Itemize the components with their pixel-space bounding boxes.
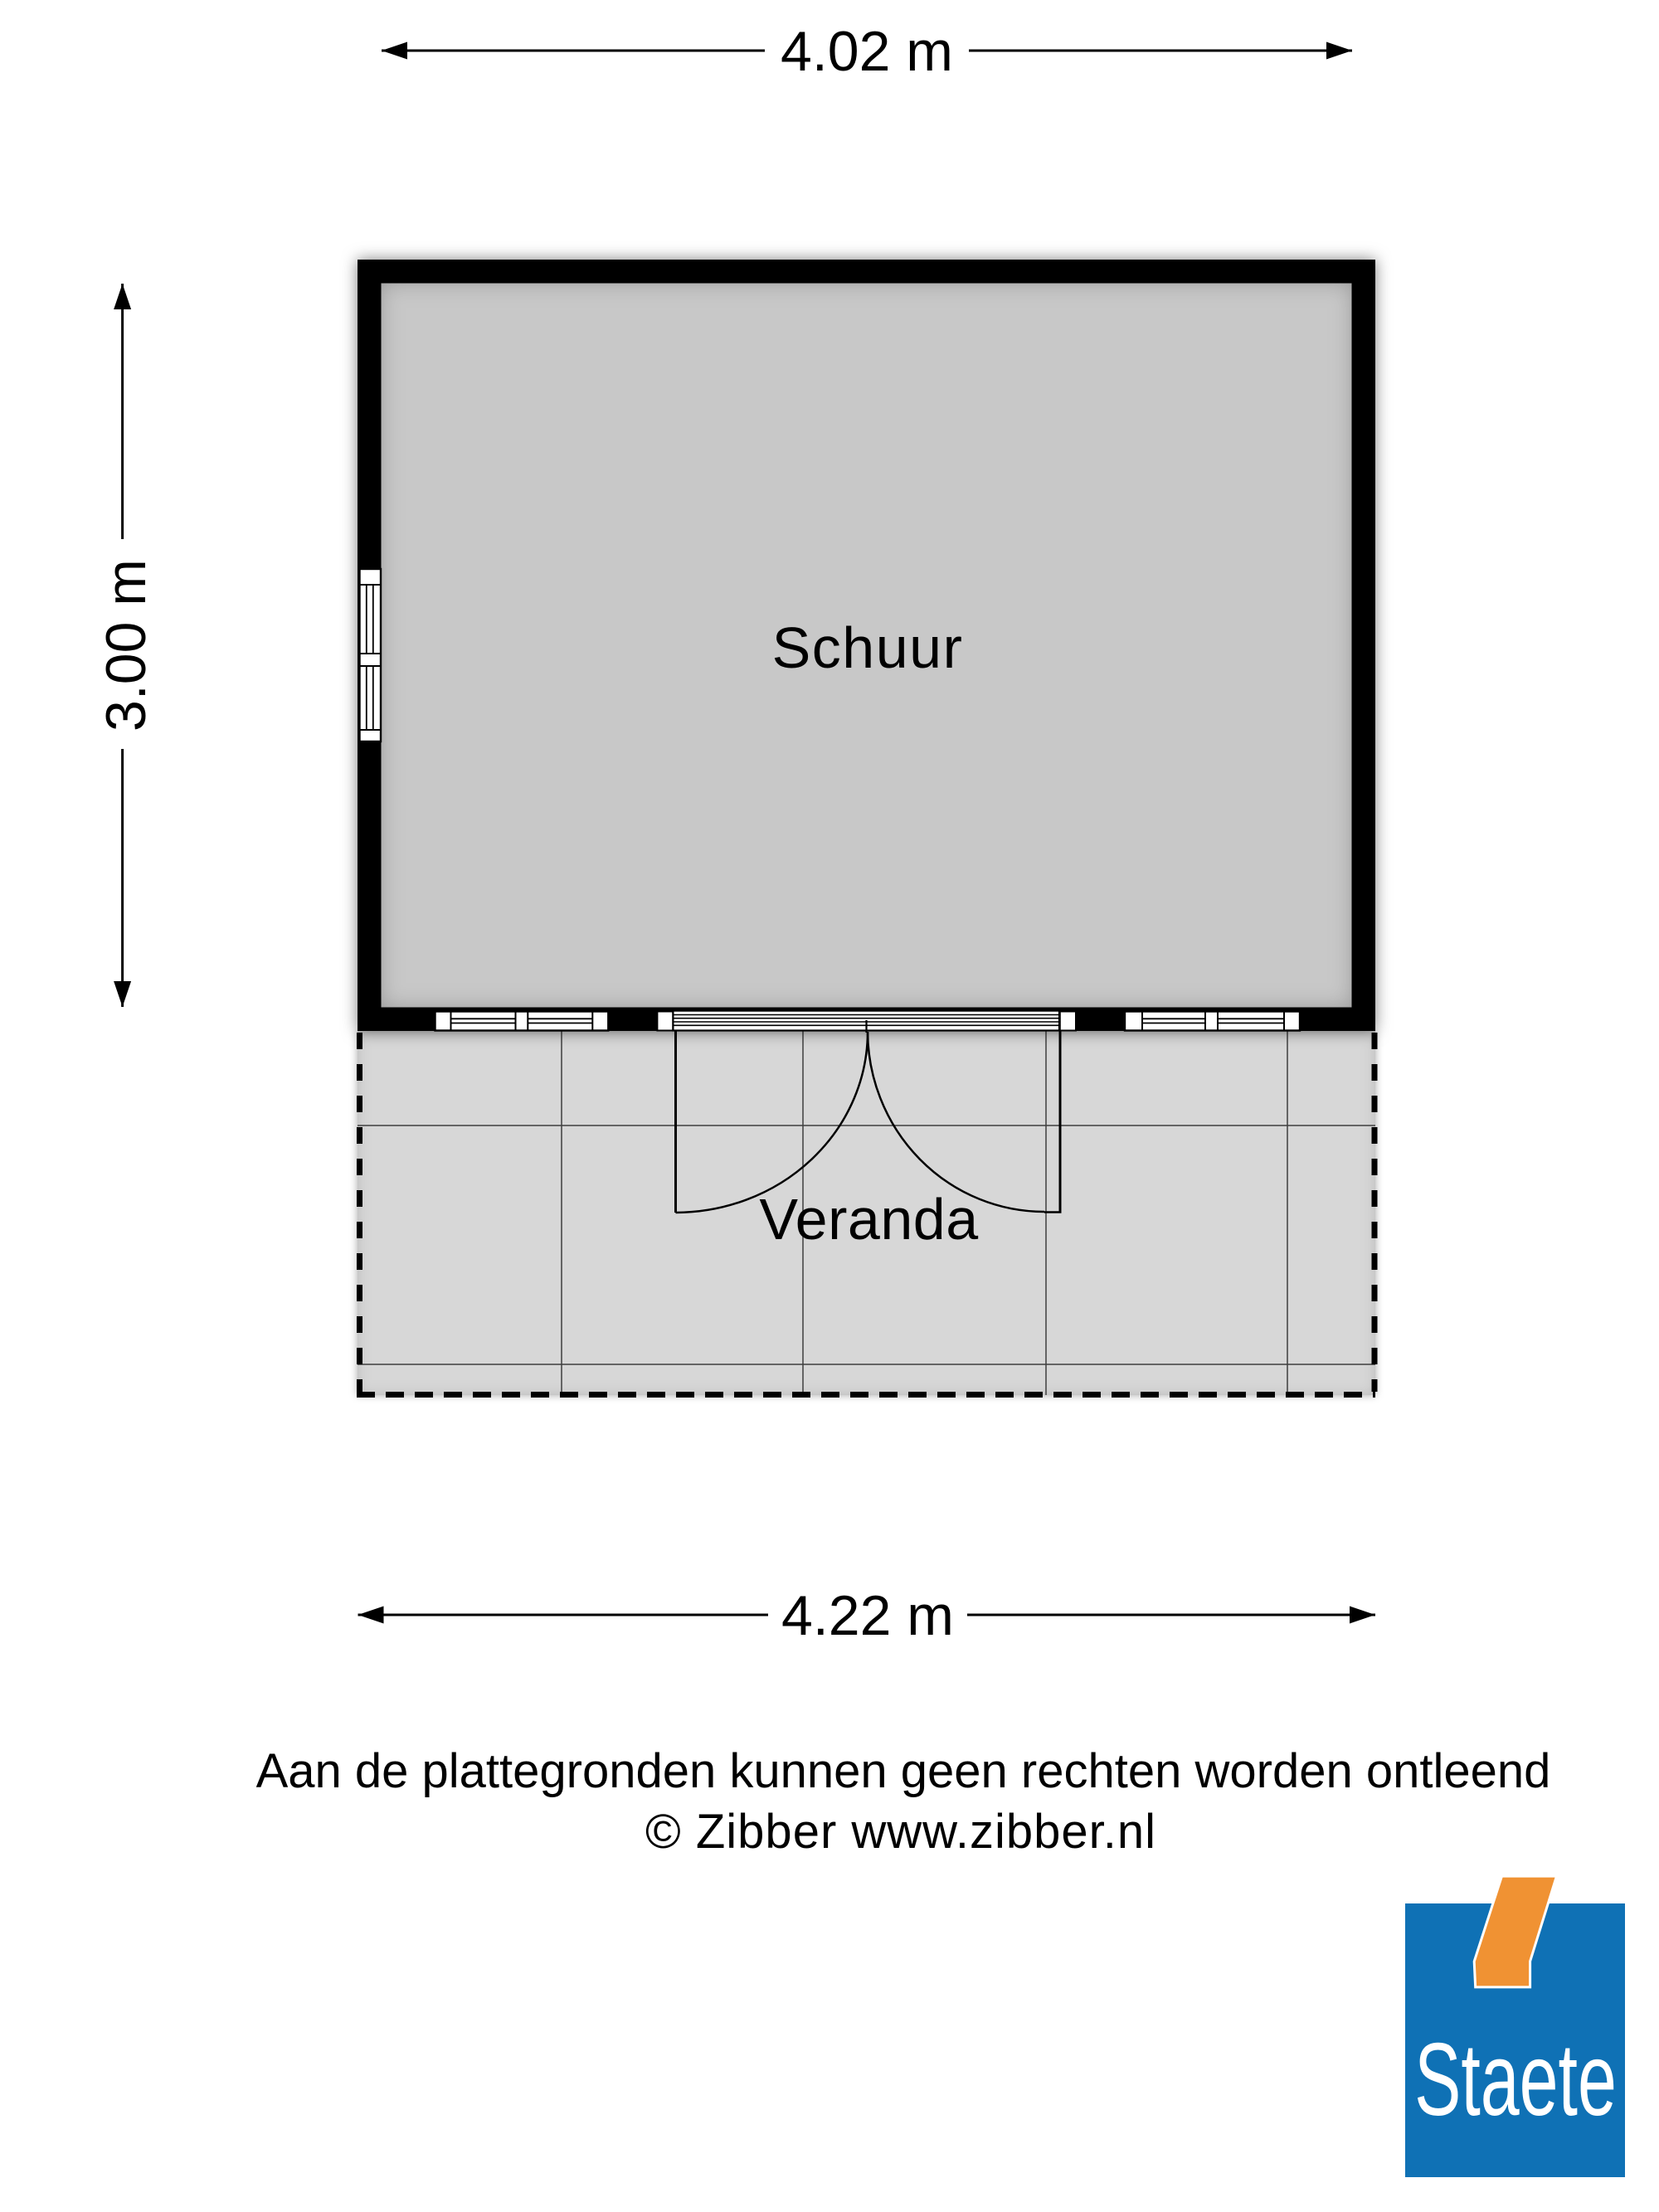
- svg-text:4.02 m: 4.02 m: [781, 20, 953, 83]
- svg-text:© Zibber www.zibber.nl: © Zibber www.zibber.nl: [645, 1805, 1156, 1859]
- svg-text:Veranda: Veranda: [759, 1187, 978, 1252]
- svg-text:3.00 m: 3.00 m: [95, 559, 158, 732]
- svg-text:4.22 m: 4.22 m: [781, 1584, 954, 1647]
- svg-text:Schuur: Schuur: [772, 615, 964, 680]
- svg-text:Aan de plattegronden kunnen ge: Aan de plattegronden kunnen geen rechten…: [256, 1744, 1551, 1798]
- svg-text:Staete: Staete: [1414, 2023, 1617, 2137]
